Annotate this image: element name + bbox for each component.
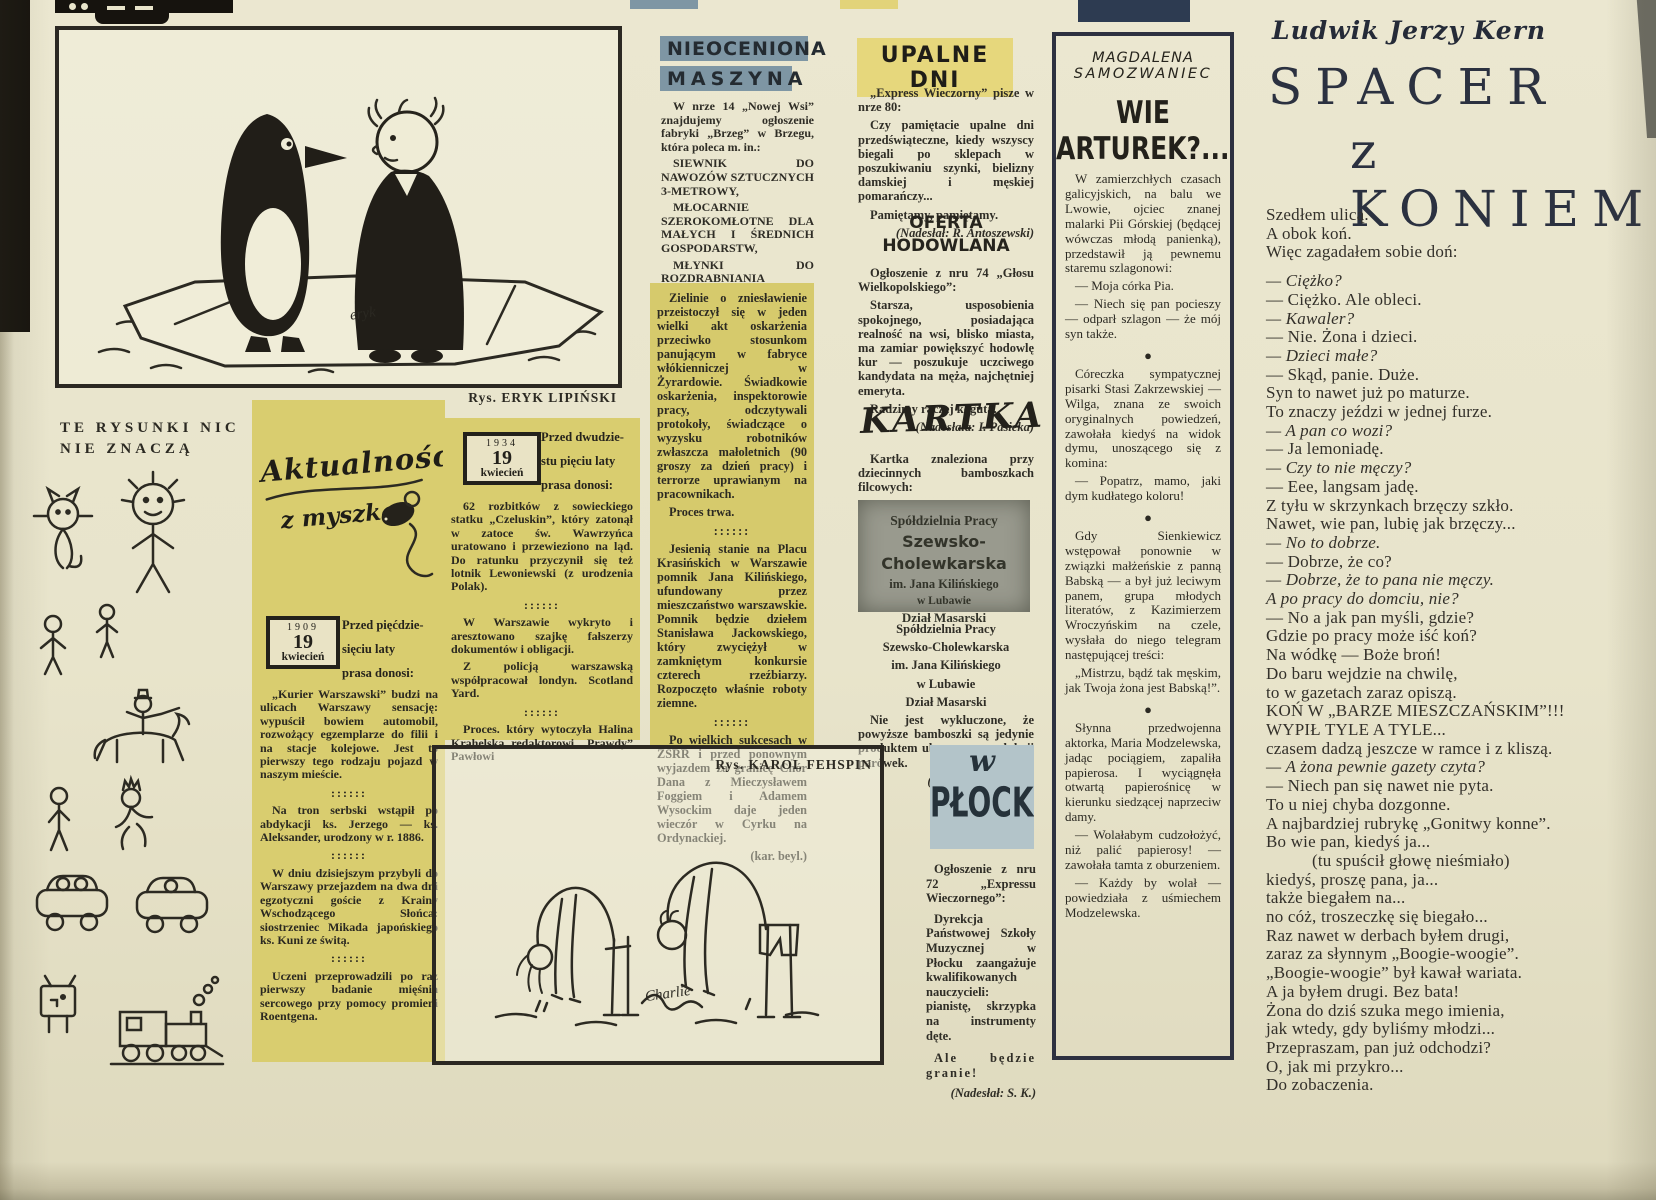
paragraph: :::::: xyxy=(657,715,807,729)
w-plocku-text: Ogłoszenie z nru 72 „Expressu Wieczorneg… xyxy=(926,862,1036,1107)
doodle-drawings xyxy=(25,452,250,1117)
paragraph: ● xyxy=(1065,703,1221,718)
poem-line: — Nie. Żona i dzieci. xyxy=(1266,328,1656,347)
page-corner-fragment xyxy=(1624,0,1656,138)
aktualnosci-column-1934: 1934 19 kwiecień Przed dwudzie-stu pięci… xyxy=(443,418,640,740)
masthead-mark xyxy=(135,6,153,10)
paragraph: SIEWNIK DO NAWOZÓW SZTUCZNYCH 3-METROWY, xyxy=(661,157,814,198)
stamp-intro-line: prasa donosi: xyxy=(342,666,436,681)
poem-line: Żona do dziś szuka mego imienia, xyxy=(1266,1002,1656,1021)
poem-line: zaraz za słynnym „Boogie-woogie”. xyxy=(1266,945,1656,964)
paragraph: Dyrekcja Państwowej Szkoły Muzycznej w P… xyxy=(926,912,1036,1043)
bending-figures-cartoon-frame: Rys. KAROL FEHSPIN C xyxy=(432,745,884,1065)
samozwaniec-text: W zamierzchłych czasach galicyjskich, na… xyxy=(1065,172,1221,921)
paragraph: Starsza, usposobienia spokojnego, posiad… xyxy=(858,298,1034,397)
nieoceniona-title-line1: NIEOCENIONA xyxy=(660,36,808,61)
poem-line: O, jak mi przykro... xyxy=(1266,1058,1656,1077)
poem-line: Do baru wejdzie na chwilę, xyxy=(1266,665,1656,684)
poem-line: — Ciężko? xyxy=(1266,272,1656,291)
stamp-month: kwiecień xyxy=(272,651,334,663)
paragraph: :::::: xyxy=(260,787,438,800)
poem-line: Gdzie po pracy może iść koń? xyxy=(1266,627,1656,646)
paragraph: Kartka znaleziona przy dziecinnych bambo… xyxy=(858,452,1034,495)
poem-line: także biegałem na... xyxy=(1266,889,1656,908)
penguin-cartoon-frame: eryk xyxy=(55,26,622,388)
paragraph: — Każdy by wolał — powiedziała z uśmiech… xyxy=(1065,876,1221,921)
paragraph: „Kurier Warszawski” budzi na ulicach War… xyxy=(260,688,438,782)
doodles-header-line1: TE RYSUNKI NIC xyxy=(60,418,240,439)
poem-line: WYPIŁ TYLE A TYLE... xyxy=(1266,721,1656,740)
paragraph: MŁOCARNIE SZEROKOMŁOTNE DLA MAŁYCH I ŚRE… xyxy=(661,201,814,255)
paragraph: :::::: xyxy=(451,599,633,612)
plocku-title-w: w xyxy=(930,745,1034,779)
paragraph: ● xyxy=(1065,511,1221,526)
column-top-fragment-blue xyxy=(630,0,698,9)
poem-line: — Skąd, panie. Duże. xyxy=(1266,366,1656,385)
date-stamp-1909: 1909 19 kwiecień xyxy=(266,616,340,669)
poem-line: — Niech pan się nawet nie pyta. xyxy=(1266,777,1656,796)
masthead-dot xyxy=(69,3,76,10)
paragraph: — Niech się pan pocieszy — odparł szlago… xyxy=(1065,297,1221,342)
poem-line: To u niej chyba dozgonne. xyxy=(1266,796,1656,815)
paragraph: Ogłoszenie z nru 74 „Głosu Wielkopolskie… xyxy=(858,266,1034,294)
paragraph: Uczeni przeprowadzili po raz pierwszy ba… xyxy=(260,970,438,1024)
scanned-newspaper-page: eryk Rys. ERYK LIPIŃSKI TE RYSUNKI NIC N… xyxy=(0,0,1656,1200)
doodle-horse-rider xyxy=(95,690,189,762)
oferta-title-line1: OFERTA xyxy=(858,212,1034,235)
masthead-fragment xyxy=(95,0,169,24)
poem-line: Przepraszam, pan już odchodzi? xyxy=(1266,1039,1656,1058)
poem-text: Szedłem ulicą.A obok koń.Więc zagadałem … xyxy=(1266,206,1656,1095)
paragraph: — Wolałabym cudzołożyć, niż palić papier… xyxy=(1065,828,1221,873)
shoemaker-cooperative-clipping: Spółdzielnia PracySzewsko-Cholewkarskaim… xyxy=(858,500,1030,612)
paragraph: :::::: xyxy=(260,849,438,862)
poem-line: Do zobaczenia. xyxy=(1266,1076,1656,1095)
doodle-car-1 xyxy=(37,876,107,930)
poem-line: To znaczy jeździ w jednej furze. xyxy=(1266,403,1656,422)
poem-line: Raz nawet w derbach byłem drugi, xyxy=(1266,927,1656,946)
paragraph: Dział Masarski xyxy=(858,695,1034,709)
oferta-title-line2: HODOWLANA xyxy=(858,235,1034,258)
plocku-title-name: PŁOCKU xyxy=(930,779,1034,827)
paragraph: Proces trwa. xyxy=(657,505,807,519)
poem-author: Ludwik Jerzy Kern xyxy=(1272,16,1546,45)
doodle-crowned-figure xyxy=(116,779,152,849)
aktualnosci-column-1909: Aktualności z myszką 1909 19 kwiecień Pr… xyxy=(252,400,445,1062)
mouse-doodle xyxy=(370,486,440,586)
poem-line: Na wódkę — Boże broń! xyxy=(1266,646,1656,665)
penguin-beak xyxy=(305,146,347,168)
paragraph: Gdy Sienkiewicz wstępował ponownie w zwi… xyxy=(1065,529,1221,663)
poem-line: Nawet, wie pan, lubię jak brzęczy... xyxy=(1266,515,1656,534)
paragraph: W zamierzchłych czasach galicyjskich, na… xyxy=(1065,172,1221,276)
poem-line: to w gazetach zaraz opiszą. xyxy=(1266,684,1656,703)
clipping-line: Spółdzielnia Pracy xyxy=(858,512,1030,531)
aktualnosci-logo-line1: Aktualności xyxy=(259,437,465,489)
paragraph: :::::: xyxy=(451,706,633,719)
poem-line: — Dobrze, że to pana nie męczy. xyxy=(1266,571,1656,590)
poem-line: A obok koń. xyxy=(1266,225,1656,244)
stamp-day: 19 xyxy=(272,633,334,651)
poem-line: A po pracy do domciu, nie? xyxy=(1266,590,1656,609)
kartka-intro-text: Kartka znaleziona przy dziecinnych bambo… xyxy=(858,452,1034,499)
doodle-cat xyxy=(34,489,92,568)
poem-line: Bo wie pan, kiedyś ja... xyxy=(1266,833,1656,852)
stamp-month: kwiecień xyxy=(469,467,535,479)
man-figure xyxy=(355,98,464,363)
bending-figures-drawing xyxy=(436,749,872,1053)
poem-line: Syn to nawet już po maturze. xyxy=(1266,384,1656,403)
paragraph: — Moja córka Pia. xyxy=(1065,279,1221,294)
doodle-car-2 xyxy=(137,878,207,932)
doodle-walking-figure xyxy=(49,788,69,850)
poem-line: kiedyś, proszę pana, ja... xyxy=(1266,871,1656,890)
kartka-title: KARTKA xyxy=(859,395,1034,442)
page-left-shadow xyxy=(0,332,14,1200)
poem-line: — No to dobrze. xyxy=(1266,534,1656,553)
paragraph: Ale będzie granie! xyxy=(926,1051,1036,1080)
paragraph: Zielinie o zniesławienie przeistoczył si… xyxy=(657,291,807,501)
poem-line: KOŃ W „BARZE MIESZCZAŃSKIM”!!! xyxy=(1266,702,1656,721)
paragraph: W dniu dzisiejszym przybyli do Warszawy … xyxy=(260,867,438,947)
poem-line: Z tyłu w skrzynkach brzęczy szkło. xyxy=(1266,497,1656,516)
paragraph: Córeczka sympatycznej pisarki Stasi Zakr… xyxy=(1065,367,1221,471)
stamp-intro-line: Przed dwudzie- xyxy=(541,430,635,445)
poem-line: — Kawaler? xyxy=(1266,310,1656,329)
clipping-line: w Lubawie xyxy=(858,593,1030,609)
samozwaniec-author-line1: MAGDALENA xyxy=(1056,50,1230,66)
poem-line: — Dzieci małe? xyxy=(1266,347,1656,366)
stamp-intro-line: prasa donosi: xyxy=(541,478,635,493)
paragraph: Z policją warszawską współpracował londy… xyxy=(451,660,633,700)
column-top-fragment-navy xyxy=(1078,0,1190,22)
poem-line: czasem dadzą jeszcze w ramce i z kliszą. xyxy=(1266,740,1656,759)
poem-line: — A żona pewnie gazety czyta? xyxy=(1266,758,1656,777)
artist-signature: eryk xyxy=(349,304,377,324)
aktualnosci-1909-text: „Kurier Warszawski” budzi na ulicach War… xyxy=(260,688,438,1027)
poem-line: Więc zagadałem sobie doń: xyxy=(1266,243,1656,262)
oferta-hodowlana-title: OFERTA HODOWLANA xyxy=(858,212,1034,258)
poem-line: Szedłem ulicą. xyxy=(1266,206,1656,225)
masthead-mark xyxy=(107,6,125,10)
w-plocku-title-box: w PŁOCKU xyxy=(930,745,1034,849)
clipping-line: Szewsko-Cholewkarska xyxy=(858,531,1030,576)
poem-line: jak wtedy, gdy byliśmy młodzi... xyxy=(1266,1020,1656,1039)
stamp-intro-line: sięciu laty xyxy=(342,642,436,657)
paragraph: — Popatrz, mamo, jaki dym kudłatego kolo… xyxy=(1065,474,1221,504)
nieoceniona-title-line2: MASZYNA xyxy=(660,66,792,91)
doodle-small-figures xyxy=(41,605,117,674)
paragraph: W nrze 14 „Nowej Wsi” znajdujemy ogłosze… xyxy=(661,100,814,154)
doodle-tv-head-figure xyxy=(41,976,75,1032)
paragraph: „Mistrzu, bądź tak męskim, jak Twoja żon… xyxy=(1065,666,1221,696)
poem-line: — Ja lemoniadę. xyxy=(1266,440,1656,459)
paragraph: Czy pamiętacie upalne dni przedświąteczn… xyxy=(858,118,1034,203)
date-stamp-1934: 1934 19 kwiecień xyxy=(463,432,541,485)
paragraph: ● xyxy=(1065,349,1221,364)
poem-line: — A pan co wozi? xyxy=(1266,422,1656,441)
penguin-cartoon-drawing xyxy=(59,30,610,376)
paragraph: 62 rozbitków z sowieckiego statku „Czelu… xyxy=(451,500,633,594)
paragraph: Spółdzielnia Pracy xyxy=(858,622,1034,636)
poem-line: — No a jak pan myśli, gdzie? xyxy=(1266,609,1656,628)
poem-line: A najbardziej rubrykę „Gonitwy konne”. xyxy=(1266,815,1656,834)
page-bottom-fold-shadow xyxy=(0,1162,1656,1200)
poem-line: (tu spuścił głowę nieśmiało) xyxy=(1266,852,1656,871)
paragraph: w Lubawie xyxy=(858,677,1034,691)
poem-line: — Eee, langsam jadę. xyxy=(1266,478,1656,497)
paragraph: :::::: xyxy=(657,524,807,538)
masthead-dot xyxy=(81,3,88,10)
zyrardow-highlight-box: Zielinie o zniesławienie przeistoczył si… xyxy=(650,283,814,747)
paragraph: Ogłoszenie z nru 72 „Expressu Wieczorneg… xyxy=(926,862,1036,906)
poem-line: „Boogie-woogie” był kawał wariata. xyxy=(1266,964,1656,983)
poem-line: — Ciężko. Ale obleci. xyxy=(1266,291,1656,310)
poem-line: — Dobrze, że co? xyxy=(1266,553,1656,572)
stamp-intro-line: stu pięciu laty xyxy=(541,454,635,469)
stamp-intro-1934: Przed dwudzie-stu pięciu latyprasa donos… xyxy=(541,430,635,502)
poem-title-line1: SPACER xyxy=(1268,58,1558,116)
doodle-train xyxy=(111,977,223,1064)
stamp-intro-1909: Przed pięćdzie-sięciu latyprasa donosi: xyxy=(342,618,436,690)
poem-line: A ja byłem drugi. Bez bata! xyxy=(1266,983,1656,1002)
paragraph: „Express Wieczorny” pisze w nrze 80: xyxy=(858,86,1034,114)
paragraph: :::::: xyxy=(260,952,438,965)
stamp-intro-line: Przed pięćdzie- xyxy=(342,618,436,633)
paragraph: Na tron serbski wstąpił po abdykacji ks.… xyxy=(260,804,438,844)
paragraph: Jesienią stanie na Placu Krasińskich w W… xyxy=(657,542,807,710)
poem-line: no cóż, troszeczkę się biegało... xyxy=(1266,908,1656,927)
aktualnosci-1934-text: 62 rozbitków z sowieckiego statku „Czelu… xyxy=(451,500,633,767)
cartoon-caption: Rys. ERYK LIPIŃSKI xyxy=(437,390,617,406)
stamp-day: 19 xyxy=(469,449,535,467)
samozwaniec-author-line2: SAMOZWANIEC xyxy=(1056,66,1230,82)
clipping-line: im. Jana Kilińskiego xyxy=(858,576,1030,594)
doodle-person-big xyxy=(122,472,184,592)
paragraph: Szewsko-Cholewkarska xyxy=(858,640,1034,654)
samozwaniec-column-box: MAGDALENA SAMOZWANIEC WIE ARTUREK?.... W… xyxy=(1052,32,1234,1060)
cartoon-caption: Rys. KAROL FEHSPIN xyxy=(715,757,872,773)
poem-line: — Czy to nie męczy? xyxy=(1266,459,1656,478)
paragraph: im. Jana Kilińskiego xyxy=(858,658,1034,672)
paragraph: (Nadesłał: S. K.) xyxy=(926,1086,1036,1101)
column-top-fragment-yellow xyxy=(840,0,898,9)
paragraph: Słynna przedwojenna aktorka, Maria Modze… xyxy=(1065,721,1221,825)
paragraph: W Warszawie wykryto i aresztowano szajkę… xyxy=(451,616,633,656)
samozwaniec-title: WIE ARTUREK?.... xyxy=(1056,94,1230,167)
page-left-dark-edge xyxy=(0,0,30,332)
figure-left xyxy=(517,888,638,1015)
